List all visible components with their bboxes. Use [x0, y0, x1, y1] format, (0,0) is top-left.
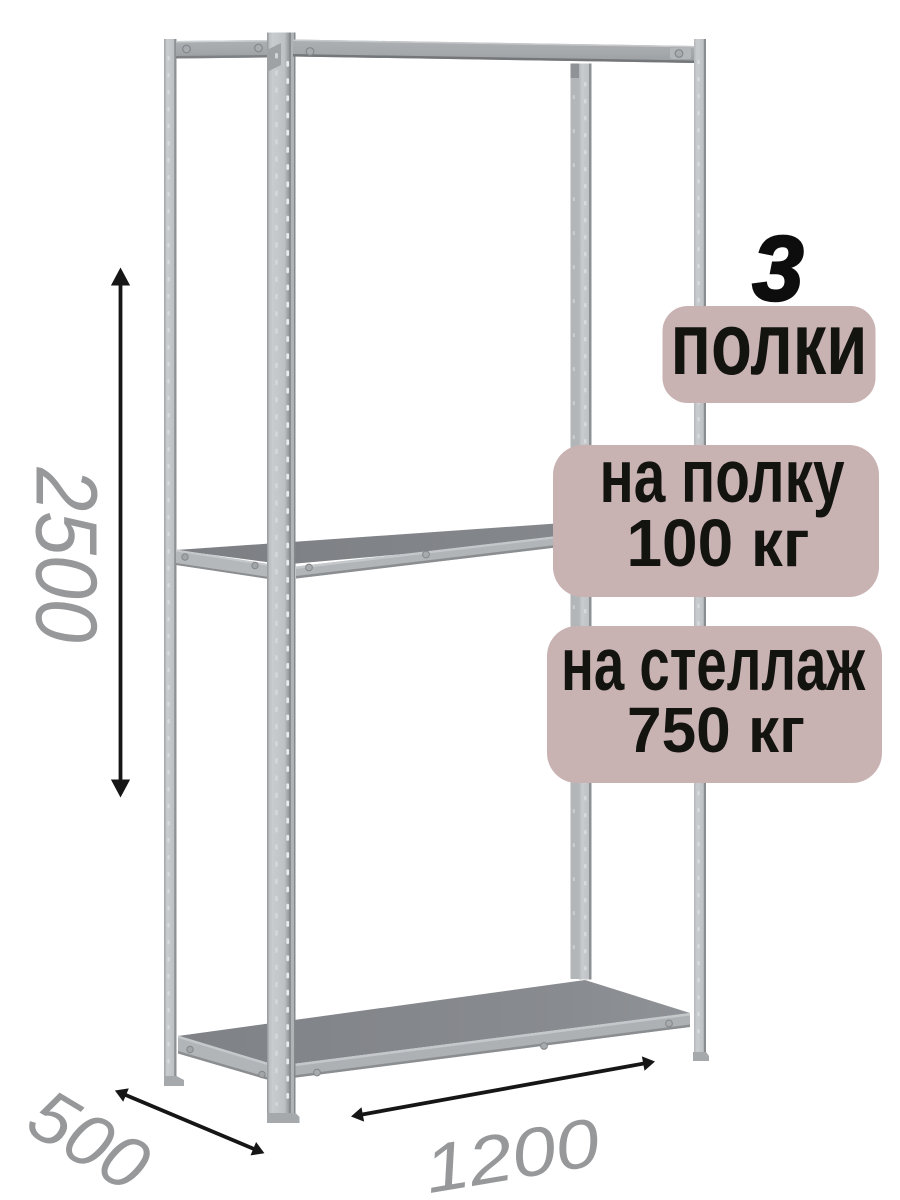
svg-text:750 кг: 750 кг — [627, 694, 805, 766]
svg-text:полки: полки — [671, 294, 868, 393]
svg-text:2500: 2500 — [18, 467, 115, 643]
svg-text:100 кг: 100 кг — [627, 506, 810, 581]
